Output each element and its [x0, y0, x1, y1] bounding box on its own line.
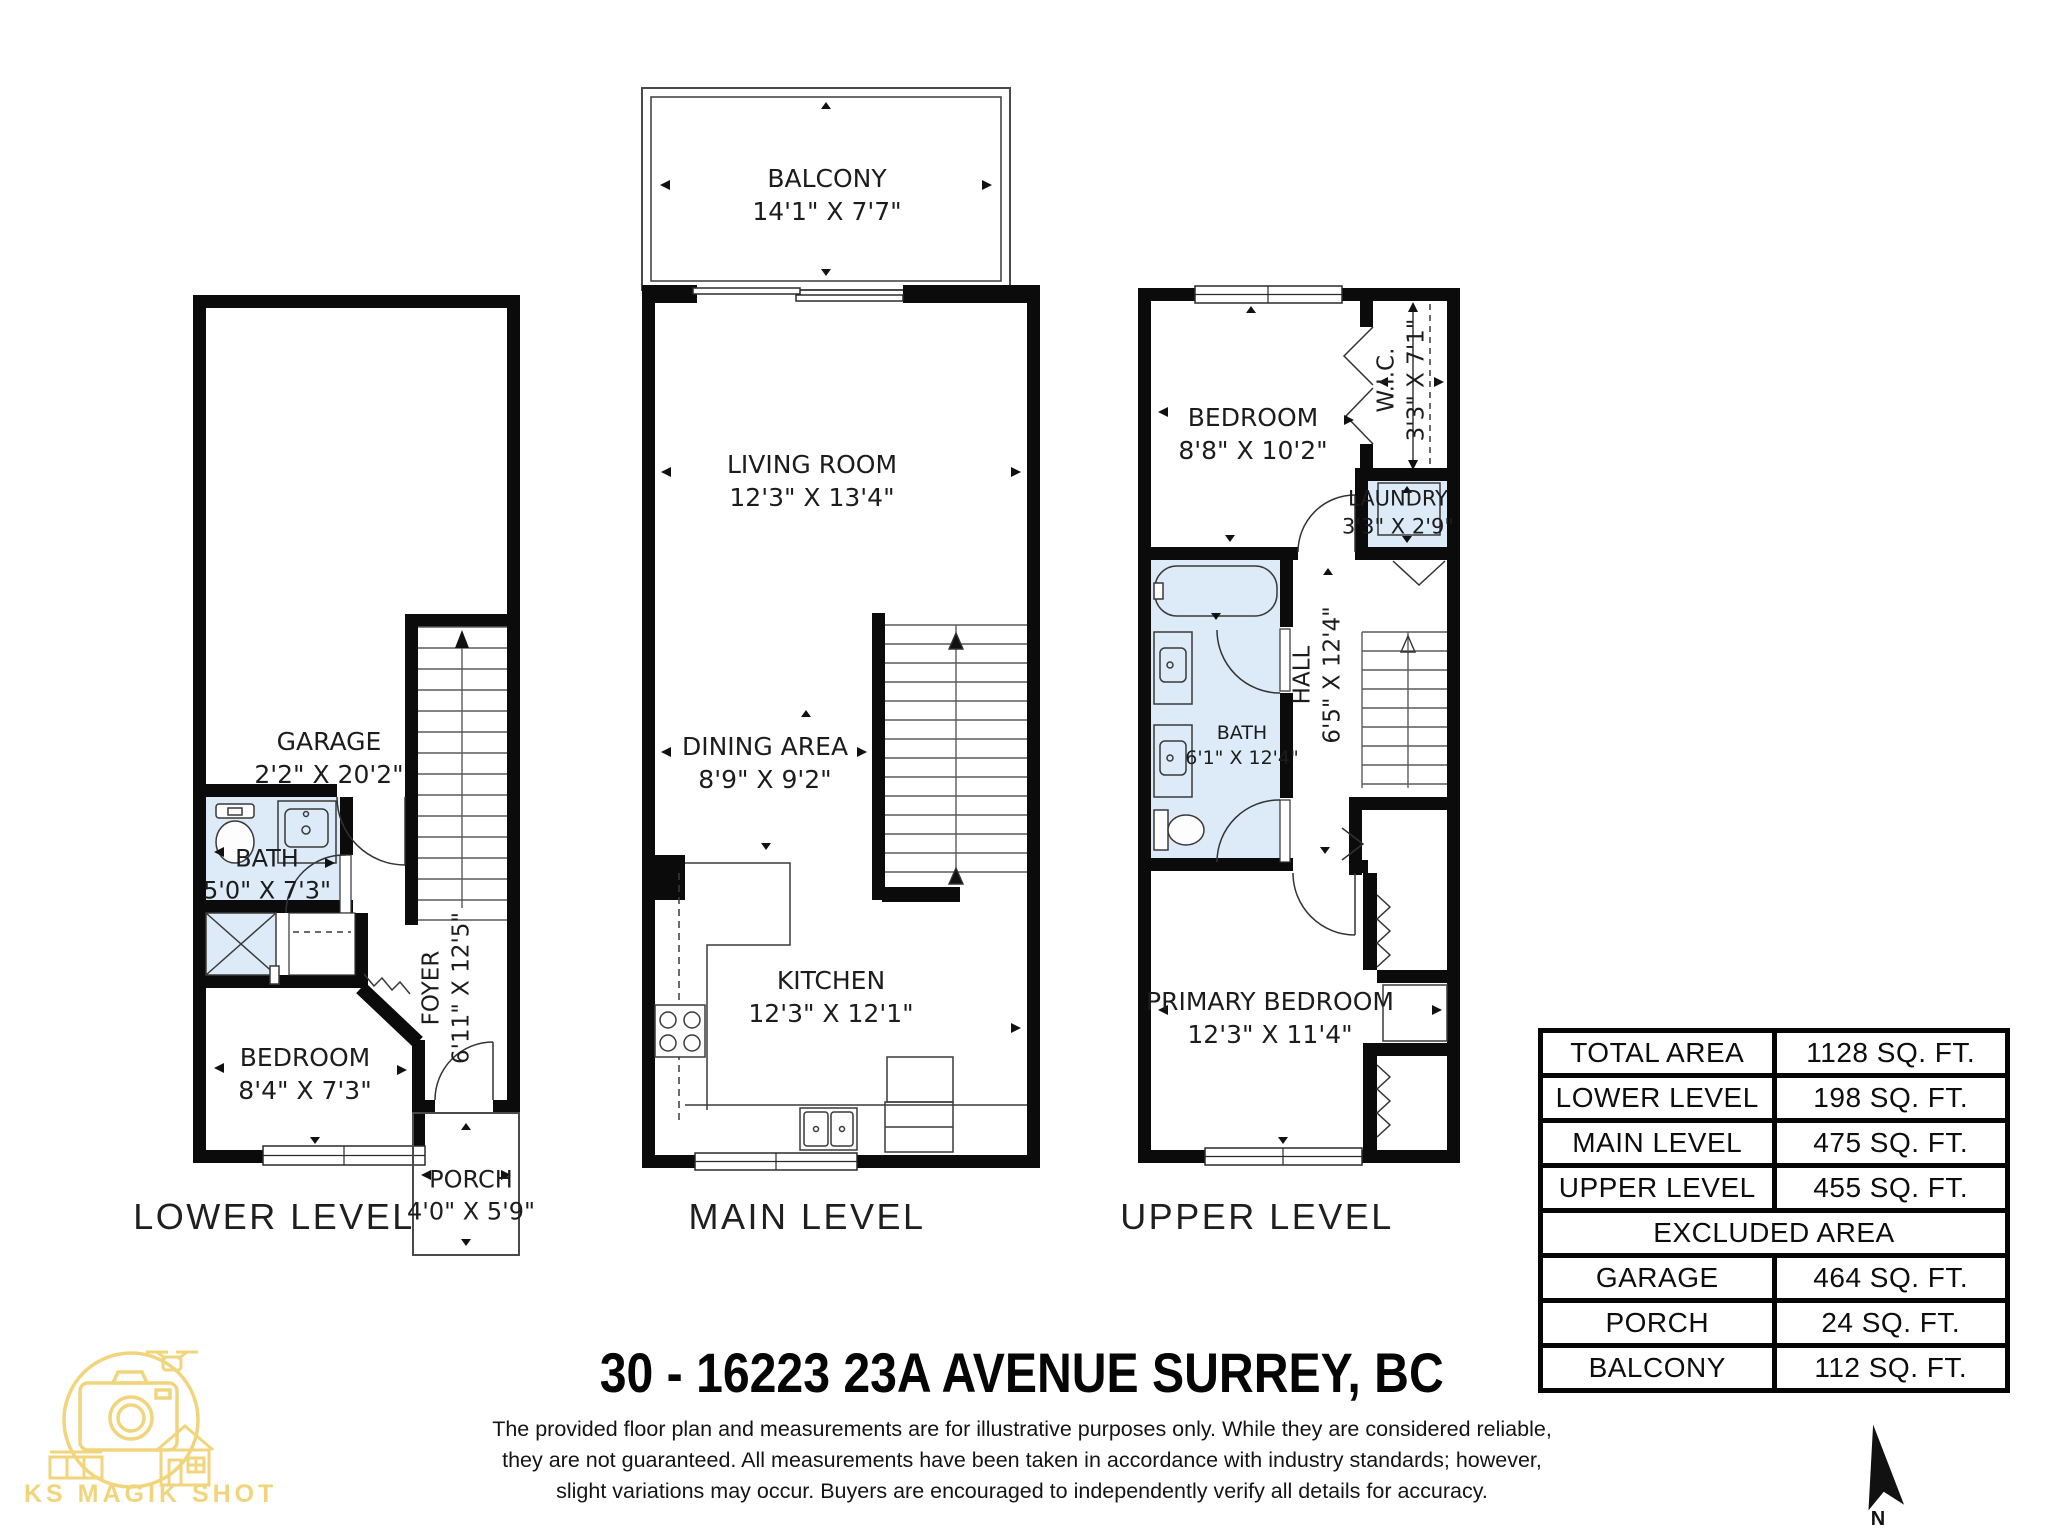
area-row-label: MAIN LEVEL: [1541, 1121, 1775, 1166]
floorplan-page: { "meta": { "address": "30 - 16223 23A A…: [0, 0, 2048, 1536]
room-name: W.I.C.: [1372, 319, 1402, 442]
room-dims: 14'1" X 7'7": [752, 195, 901, 228]
room-label-kitchen: KITCHEN 12'3" X 12'1": [748, 964, 913, 1030]
room-dims: 3'3" X 7'1": [1402, 319, 1432, 442]
room-label-dining-area: DINING AREA 8'9" X 9'2": [682, 730, 848, 796]
room-dims: 8'4" X 7'3": [238, 1074, 371, 1107]
room-label-hall: HALL 6'5" X 12'4": [1288, 606, 1349, 743]
main-stairs: [885, 625, 1027, 884]
table-row: PORCH 24 SQ. FT.: [1541, 1301, 2008, 1346]
area-row-value: 455 SQ. FT.: [1774, 1166, 2008, 1211]
area-row-value: 24 SQ. FT.: [1774, 1301, 2008, 1346]
table-row: MAIN LEVEL 475 SQ. FT.: [1541, 1121, 2008, 1166]
table-row: TOTAL AREA 1128 SQ. FT.: [1541, 1031, 2008, 1076]
room-label-garage: GARAGE 2'2" X 20'2": [254, 725, 403, 791]
excluded-area-header: EXCLUDED AREA: [1541, 1211, 2008, 1256]
upper-stairs: [1362, 632, 1447, 788]
room-name: BATH: [203, 843, 331, 875]
north-arrow-icon: [1856, 1424, 1904, 1514]
room-name: BALCONY: [752, 162, 901, 195]
ks-magik-shot-logo: [38, 1332, 308, 1502]
room-label-porch: PORCH 4'0" X 5'9": [407, 1164, 535, 1227]
room-label-primary-bedroom: PRIMARY BEDROOM 12'3" X 11'4": [1146, 985, 1394, 1051]
room-dims: 12'3" X 11'4": [1146, 1018, 1394, 1051]
room-name: HALL: [1288, 606, 1318, 743]
room-name: PORCH: [407, 1164, 535, 1196]
room-dims: 12'3" X 13'4": [727, 481, 897, 514]
caption-main-level: MAIN LEVEL: [688, 1196, 925, 1238]
caption-lower-level: LOWER LEVEL: [133, 1196, 415, 1238]
room-name: LIVING ROOM: [727, 448, 897, 481]
area-row-value: 1128 SQ. FT.: [1774, 1031, 2008, 1076]
room-name: BATH: [1185, 721, 1298, 746]
area-row-value: 475 SQ. FT.: [1774, 1121, 2008, 1166]
area-row-label: PORCH: [1541, 1301, 1775, 1346]
area-row-value: 198 SQ. FT.: [1774, 1076, 2008, 1121]
room-dims: 5'0" X 7'3": [203, 875, 331, 907]
area-row-value: 464 SQ. FT.: [1774, 1256, 2008, 1301]
disclaimer: The provided floor plan and measurements…: [452, 1414, 1592, 1507]
north-label: N: [1846, 1508, 1910, 1531]
area-row-value: 112 SQ. FT.: [1774, 1346, 2008, 1391]
room-label-foyer: FOYER 6'11" X 12'5": [417, 912, 478, 1064]
room-name: BEDROOM: [238, 1041, 371, 1074]
room-label-living-room: LIVING ROOM 12'3" X 13'4": [727, 448, 897, 514]
room-dims: 6'1" X 12'4": [1185, 746, 1298, 771]
room-label-upper-bath: BATH 6'1" X 12'4": [1185, 721, 1298, 771]
room-label-balcony: BALCONY 14'1" X 7'7": [752, 162, 901, 228]
room-dims: 12'3" X 12'1": [748, 997, 913, 1030]
lower-stairs: [418, 627, 507, 920]
room-dims: 4'0" X 5'9": [407, 1196, 535, 1228]
page-title: 30 - 16223 23A AVENUE SURREY, BC: [452, 1340, 1592, 1405]
room-name: DINING AREA: [682, 730, 848, 763]
area-row-label: TOTAL AREA: [1541, 1031, 1775, 1076]
area-table: TOTAL AREA 1128 SQ. FT. LOWER LEVEL 198 …: [1538, 1028, 2010, 1393]
area-row-label: UPPER LEVEL: [1541, 1166, 1775, 1211]
area-row-label: LOWER LEVEL: [1541, 1076, 1775, 1121]
room-name: GARAGE: [254, 725, 403, 758]
room-dims: 8'9" X 9'2": [682, 763, 848, 796]
room-label-upper-bedroom: BEDROOM 8'8" X 10'2": [1178, 401, 1327, 467]
room-name: LAUNDRY: [1342, 485, 1454, 513]
address-text: 30 - 16223 23A AVENUE SURREY, BC: [600, 1340, 1444, 1405]
room-name: FOYER: [417, 912, 447, 1064]
area-row-label: GARAGE: [1541, 1256, 1775, 1301]
disclaimer-line: they are not guaranteed. All measurement…: [452, 1445, 1592, 1476]
brand-text: KS MAGIK SHOT: [24, 1480, 324, 1509]
caption-upper-level: UPPER LEVEL: [1120, 1196, 1394, 1238]
room-dims: 2'2" X 20'2": [254, 758, 403, 791]
room-label-laundry: LAUNDRY 3'3" X 2'9": [1342, 485, 1454, 540]
table-row: LOWER LEVEL 198 SQ. FT.: [1541, 1076, 2008, 1121]
room-dims: 6'5" X 12'4": [1318, 606, 1348, 743]
room-label-lower-bedroom: BEDROOM 8'4" X 7'3": [238, 1041, 371, 1107]
room-name: PRIMARY BEDROOM: [1146, 985, 1394, 1018]
table-row-excluded-header: EXCLUDED AREA: [1541, 1211, 2008, 1256]
room-label-lower-bath: BATH 5'0" X 7'3": [203, 843, 331, 906]
room-dims: 6'11" X 12'5": [447, 912, 477, 1064]
room-name: BEDROOM: [1178, 401, 1327, 434]
table-row: GARAGE 464 SQ. FT.: [1541, 1256, 2008, 1301]
room-label-wic: W.I.C. 3'3" X 7'1": [1372, 319, 1433, 442]
table-row: BALCONY 112 SQ. FT.: [1541, 1346, 2008, 1391]
room-dims: 3'3" X 2'9": [1342, 513, 1454, 541]
main-level-floorplan: [630, 80, 1050, 1240]
disclaimer-line: slight variations may occur. Buyers are …: [452, 1476, 1592, 1507]
room-dims: 8'8" X 10'2": [1178, 434, 1327, 467]
table-row: UPPER LEVEL 455 SQ. FT.: [1541, 1166, 2008, 1211]
room-name: KITCHEN: [748, 964, 913, 997]
disclaimer-line: The provided floor plan and measurements…: [452, 1414, 1592, 1445]
